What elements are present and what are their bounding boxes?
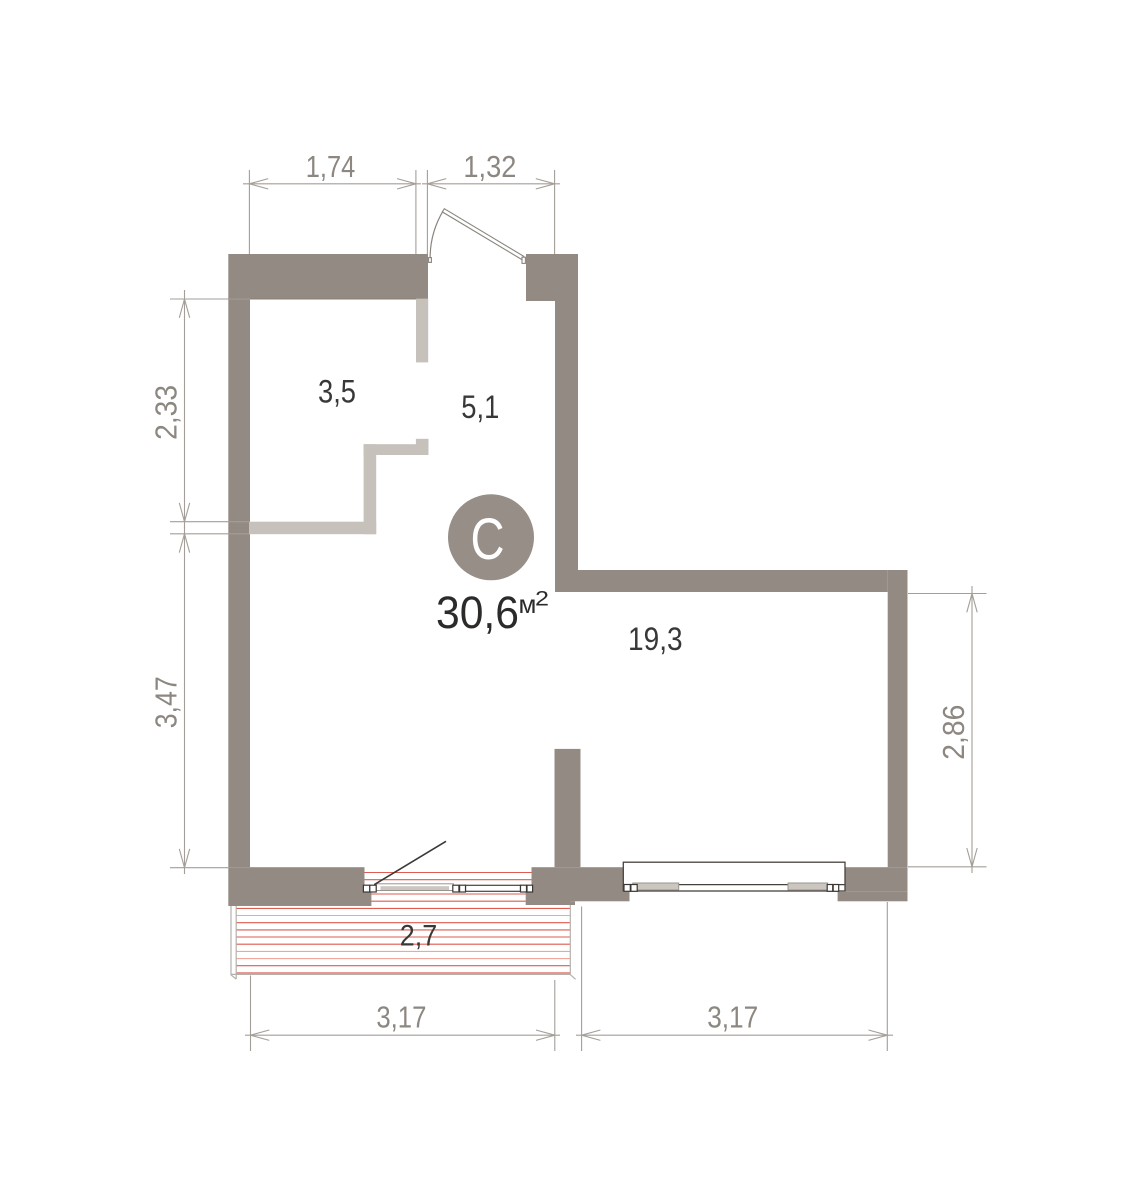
svg-text:1,74: 1,74 (306, 150, 356, 184)
svg-text:3,17: 3,17 (707, 1000, 758, 1034)
svg-text:1,32: 1,32 (463, 150, 516, 184)
svg-text:5,1: 5,1 (461, 389, 499, 425)
svg-text:2,33: 2,33 (150, 385, 184, 440)
svg-text:2,7: 2,7 (400, 920, 438, 953)
svg-text:30,6: 30,6 (436, 587, 519, 638)
svg-text:3,47: 3,47 (150, 676, 184, 728)
svg-text:19,3: 19,3 (628, 621, 683, 657)
svg-text:2: 2 (535, 587, 549, 611)
svg-text:3,17: 3,17 (376, 1000, 426, 1034)
svg-text:2,86: 2,86 (937, 705, 971, 760)
svg-text:м: м (519, 589, 537, 619)
svg-text:3,5: 3,5 (318, 373, 356, 409)
svg-text:С: С (471, 507, 505, 572)
